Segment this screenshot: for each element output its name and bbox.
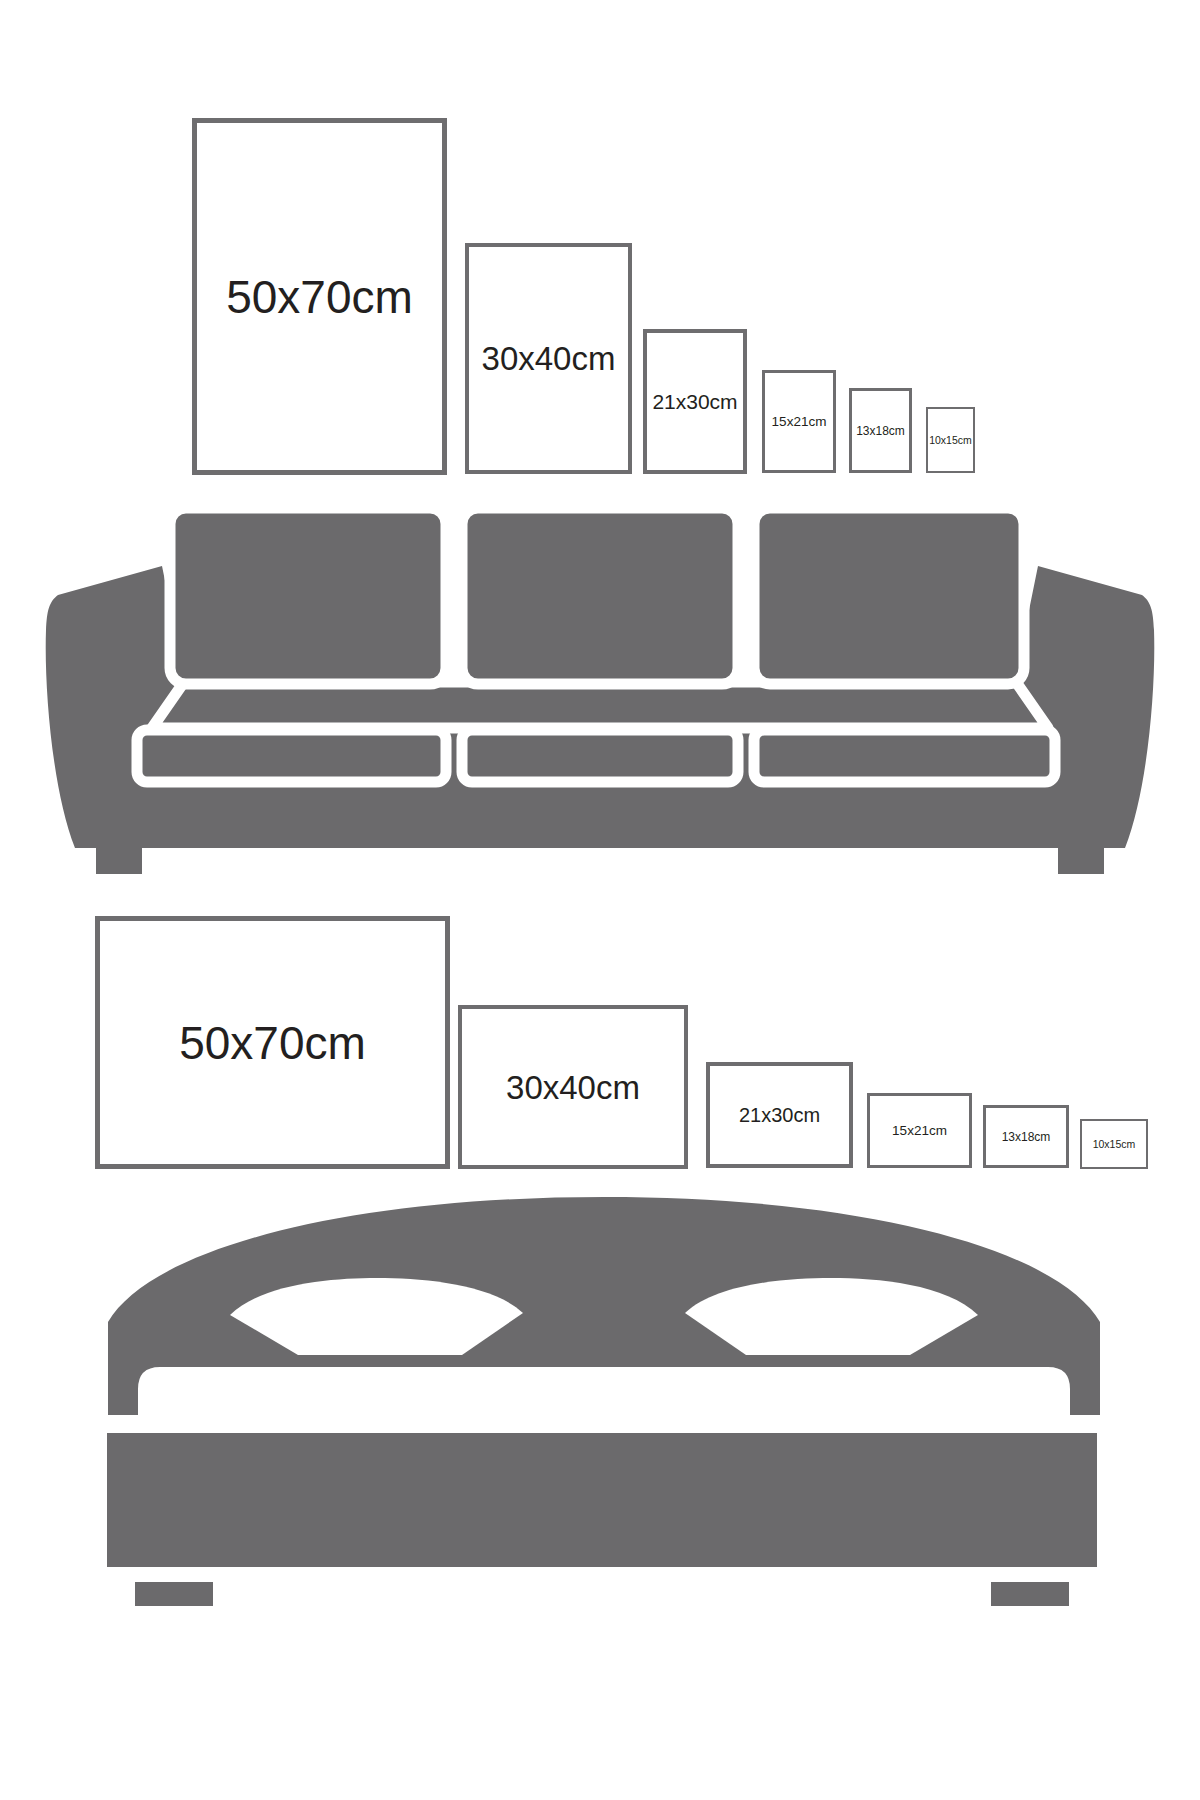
size-label: 15x21cm (772, 415, 827, 429)
size-frame-50x70-portrait: 50x70cm (192, 118, 447, 475)
size-label: 13x18cm (1002, 1131, 1051, 1143)
size-label: 30x40cm (506, 1071, 640, 1104)
size-label: 15x21cm (892, 1124, 947, 1138)
poster-frame-size-guide: 50x70cm 30x40cm 21x30cm 15x21cm 13x18cm … (0, 0, 1200, 1800)
size-frame-21x30-portrait: 21x30cm (643, 329, 747, 474)
size-frame-15x21-portrait: 15x21cm (762, 370, 836, 473)
size-frame-13x18-landscape: 13x18cm (983, 1105, 1069, 1168)
size-frame-30x40-landscape: 30x40cm (458, 1005, 688, 1169)
size-label: 21x30cm (652, 391, 737, 412)
size-label: 13x18cm (856, 425, 905, 437)
sofa-icon (0, 470, 1200, 890)
size-frame-10x15-portrait: 10x15cm (926, 407, 975, 473)
size-frame-15x21-landscape: 15x21cm (867, 1093, 972, 1168)
size-label: 10x15cm (1093, 1139, 1136, 1150)
size-label: 21x30cm (739, 1105, 820, 1125)
size-frame-13x18-portrait: 13x18cm (849, 388, 912, 473)
size-label: 10x15cm (929, 435, 972, 446)
size-frame-21x30-landscape: 21x30cm (706, 1062, 853, 1168)
size-label: 50x70cm (179, 1020, 366, 1066)
size-label: 50x70cm (226, 274, 413, 320)
size-frame-30x40-portrait: 30x40cm (465, 243, 632, 474)
size-label: 30x40cm (482, 342, 616, 375)
bed-icon (0, 1160, 1200, 1620)
size-frame-50x70-landscape: 50x70cm (95, 916, 450, 1169)
